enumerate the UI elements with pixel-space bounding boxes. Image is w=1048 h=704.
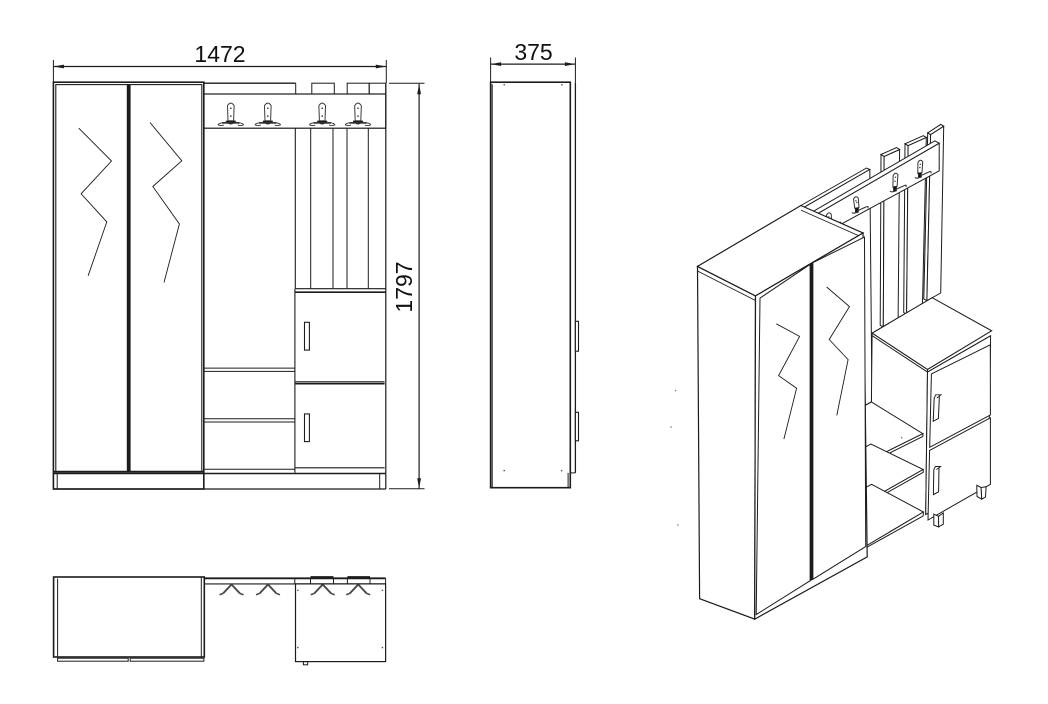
svg-text:375: 375	[514, 39, 552, 65]
svg-text:1797: 1797	[391, 261, 417, 312]
svg-text:1472: 1472	[194, 41, 245, 67]
